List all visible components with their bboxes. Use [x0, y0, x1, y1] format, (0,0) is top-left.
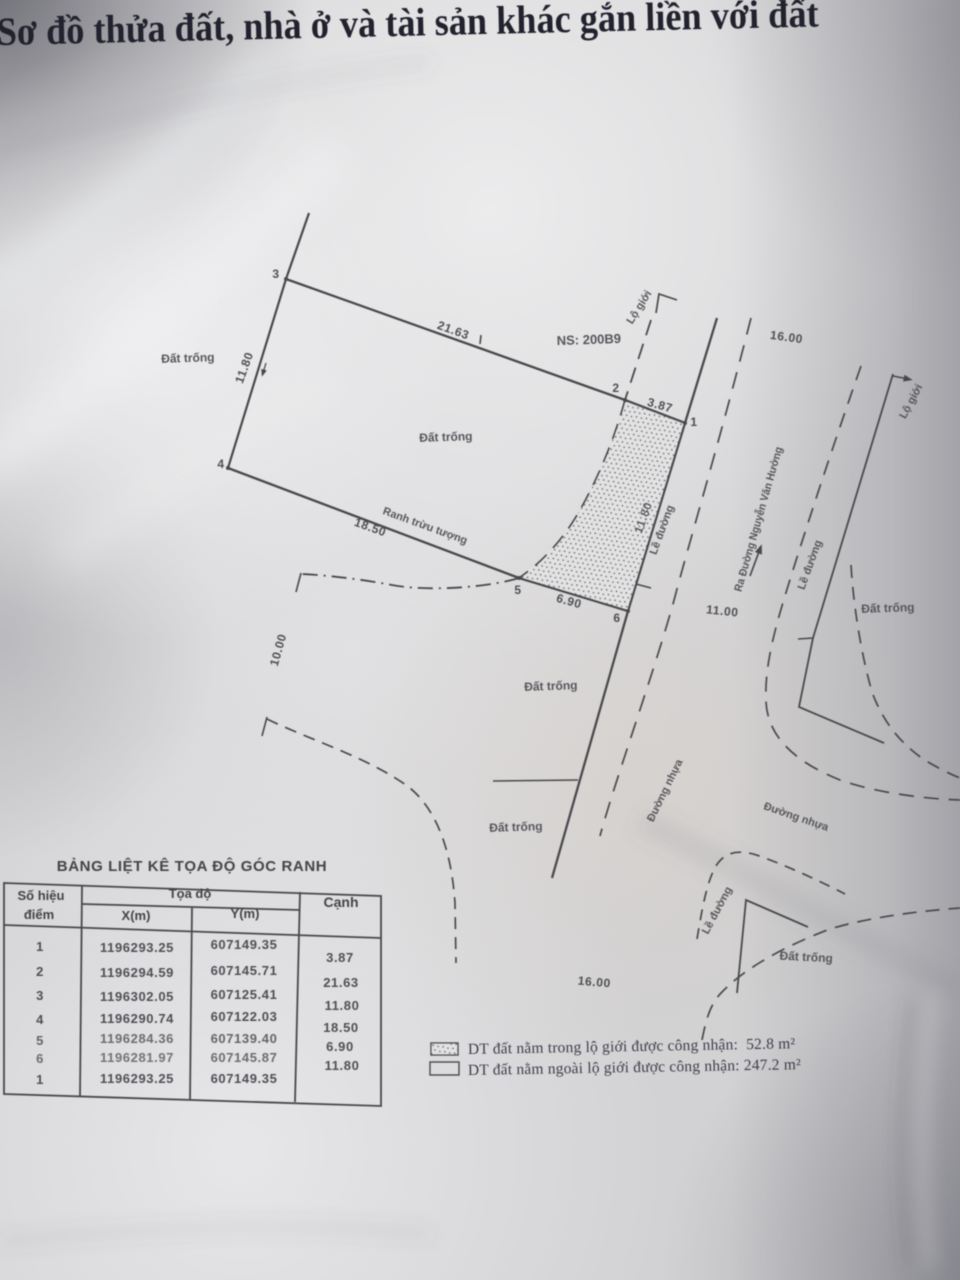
svg-text:1: 1	[690, 415, 697, 429]
svg-text:Đất trống: Đất trống	[861, 600, 915, 616]
svg-text:6: 6	[36, 1051, 44, 1066]
svg-text:607122.03: 607122.03	[211, 1009, 278, 1024]
svg-text:11.80: 11.80	[325, 998, 360, 1013]
svg-text:Đất trống: Đất trống	[779, 949, 833, 966]
svg-text:1196294.59: 1196294.59	[100, 965, 174, 980]
svg-text:1196290.74: 1196290.74	[100, 1011, 174, 1026]
svg-text:Tọa độ: Tọa độ	[169, 886, 212, 901]
svg-text:6.90: 6.90	[326, 1039, 354, 1054]
svg-text:Số hiệu: Số hiệu	[18, 888, 65, 903]
svg-text:Đất trống: Đất trống	[161, 350, 215, 366]
svg-text:607145.71: 607145.71	[211, 963, 278, 978]
svg-text:2: 2	[612, 381, 619, 395]
svg-text:1196284.36: 1196284.36	[100, 1031, 174, 1046]
svg-text:4: 4	[217, 457, 224, 471]
svg-text:Đất trống: Đất trống	[489, 819, 543, 835]
svg-text:1196293.25: 1196293.25	[100, 940, 174, 955]
svg-text:3: 3	[272, 267, 279, 281]
svg-text:607145.87: 607145.87	[211, 1050, 278, 1065]
svg-text:NS: 200B9: NS: 200B9	[556, 331, 621, 348]
svg-text:2: 2	[36, 964, 44, 979]
svg-text:11.80: 11.80	[325, 1058, 360, 1073]
svg-text:607149.35: 607149.35	[211, 937, 278, 952]
svg-text:Đất trống: Đất trống	[524, 678, 578, 694]
svg-text:5: 5	[36, 1033, 44, 1048]
svg-text:1196281.97: 1196281.97	[100, 1050, 174, 1065]
svg-text:4: 4	[36, 1012, 44, 1027]
svg-text:1196302.05: 1196302.05	[100, 989, 174, 1004]
svg-text:1196293.25: 1196293.25	[100, 1071, 174, 1086]
svg-text:BẢNG LIỆT KÊ TỌA ĐỘ GÓC RANH: BẢNG LIỆT KÊ TỌA ĐỘ GÓC RANH	[57, 857, 327, 875]
svg-text:21.63: 21.63	[323, 975, 359, 990]
svg-text:Y(m): Y(m)	[231, 906, 260, 921]
svg-text:3: 3	[36, 988, 44, 1003]
svg-text:1: 1	[36, 939, 44, 954]
svg-text:6: 6	[613, 611, 620, 625]
svg-text:16.00: 16.00	[577, 974, 611, 991]
svg-text:607149.35: 607149.35	[211, 1071, 278, 1086]
svg-text:Đất trống: Đất trống	[419, 429, 473, 445]
svg-text:X(m): X(m)	[122, 908, 151, 923]
svg-text:607139.40: 607139.40	[211, 1031, 278, 1046]
svg-text:Cạnh: Cạnh	[324, 894, 359, 910]
svg-text:3.87: 3.87	[326, 950, 354, 965]
svg-text:18.50: 18.50	[323, 1020, 359, 1035]
svg-text:1: 1	[36, 1072, 44, 1087]
svg-text:607125.41: 607125.41	[211, 987, 278, 1002]
svg-text:điểm: điểm	[24, 907, 54, 922]
svg-text:5: 5	[514, 583, 521, 597]
